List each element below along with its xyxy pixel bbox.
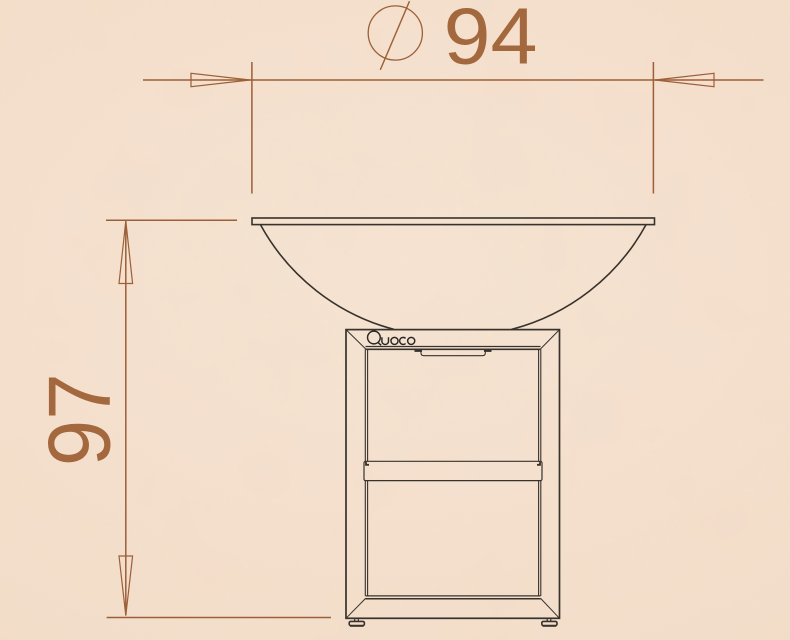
svg-text:97: 97 (30, 373, 129, 466)
svg-text:94: 94 (444, 0, 538, 80)
